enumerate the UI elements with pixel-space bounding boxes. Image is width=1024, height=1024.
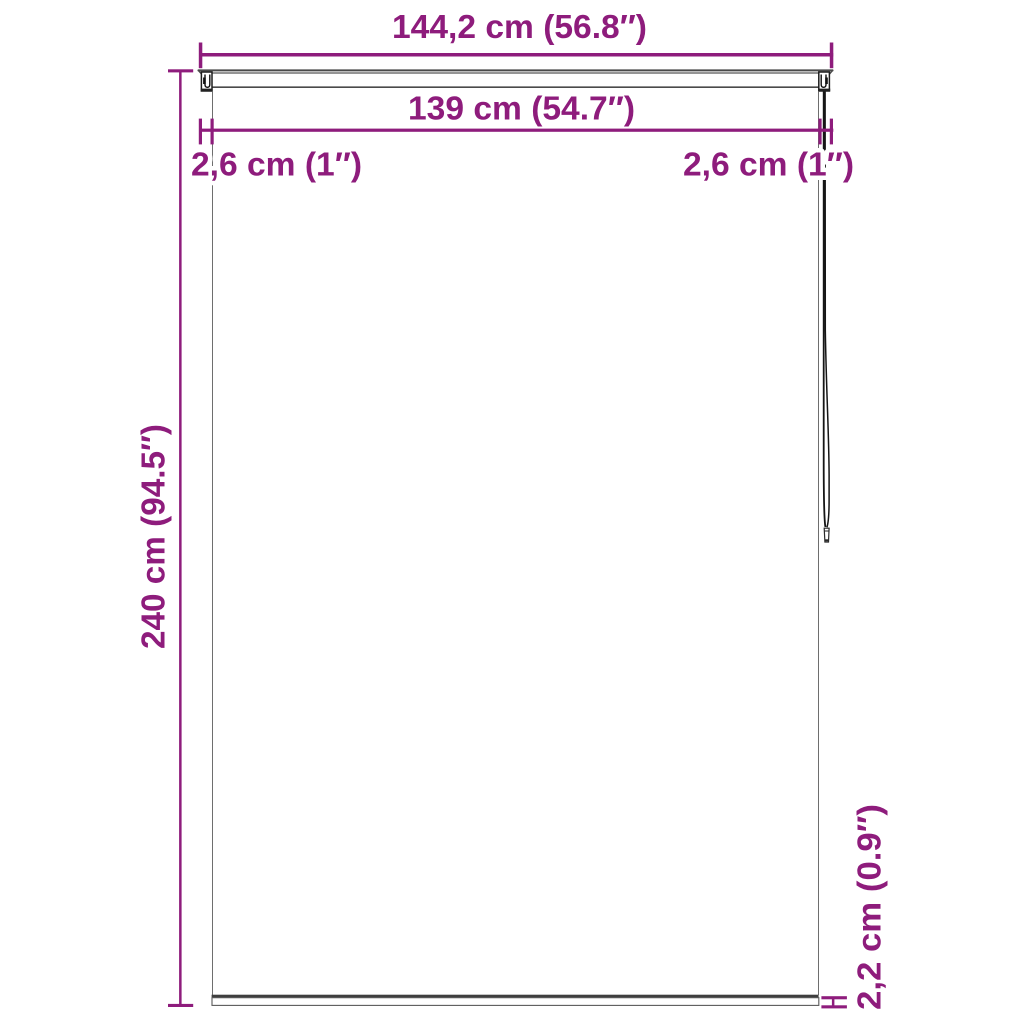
svg-text:144,2 cm (56.8″): 144,2 cm (56.8″) bbox=[392, 8, 647, 45]
svg-text:2,2 cm (0.9″): 2,2 cm (0.9″) bbox=[851, 804, 888, 1010]
svg-text:2,6 cm (1″): 2,6 cm (1″) bbox=[683, 146, 854, 183]
svg-text:240 cm (94.5″): 240 cm (94.5″) bbox=[135, 424, 172, 649]
svg-text:2,6 cm (1″): 2,6 cm (1″) bbox=[191, 146, 362, 183]
svg-text:139 cm (54.7″): 139 cm (54.7″) bbox=[408, 90, 635, 127]
